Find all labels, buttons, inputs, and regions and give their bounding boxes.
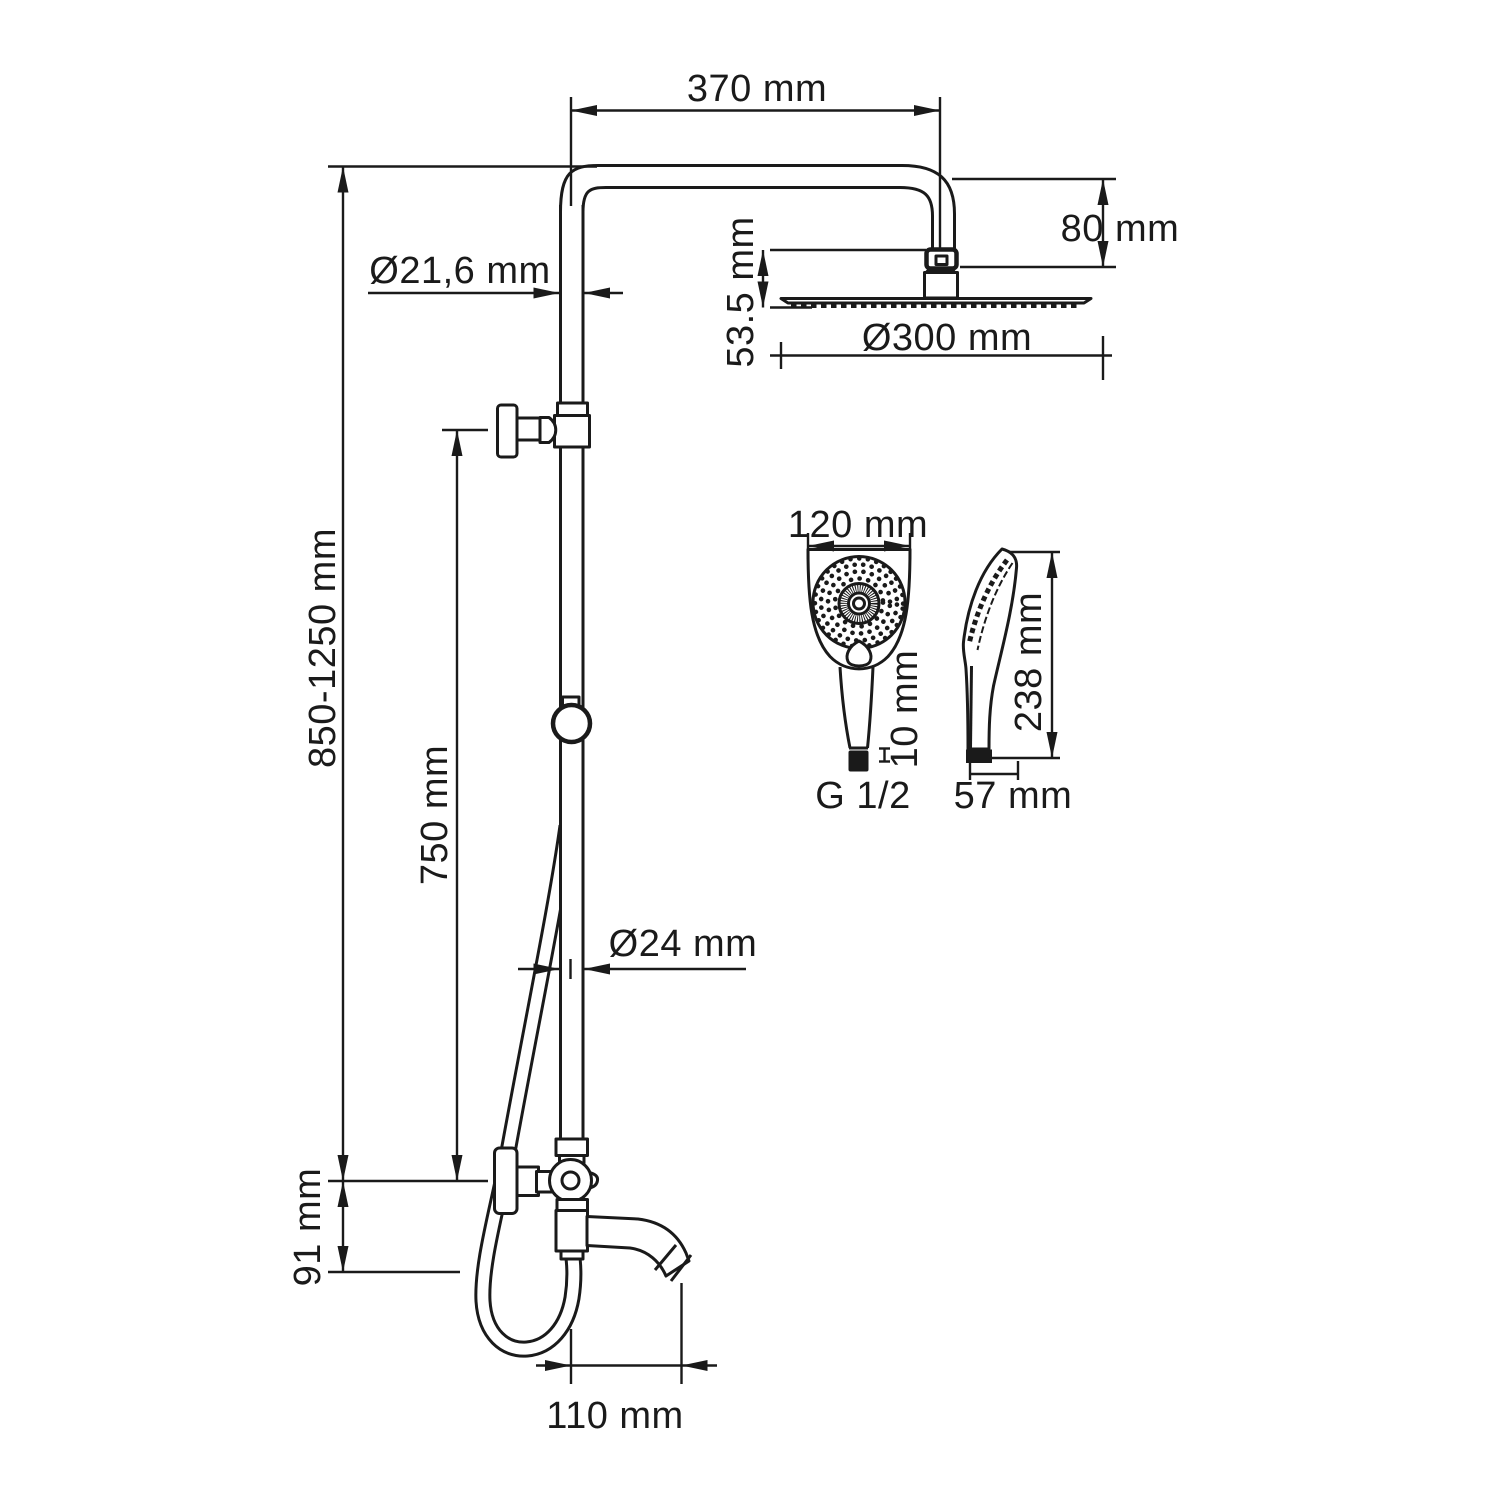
dim-handshower-thread: G 1/2 [815, 775, 910, 817]
diverter-knob [553, 705, 590, 742]
overhead-shower-disc [781, 299, 1091, 304]
handshower-length-label: 238 mm [1008, 592, 1050, 732]
dim-head-offset-height: 80 mm [952, 179, 1179, 267]
slider-flange [540, 418, 556, 443]
handshower-thread-label: G 1/2 [815, 775, 910, 817]
handshower-width-label: 120 mm [788, 504, 928, 546]
handshower-handle-left-edge [840, 667, 850, 748]
mixer-top-fitting [556, 1139, 588, 1156]
dim-column-height-range: 850-1250 mm [302, 167, 597, 1182]
dim-upper-pipe-diameter: Ø21,6 mm [368, 250, 623, 293]
handshower-thread-connector [849, 751, 869, 772]
dim-slider-height: 750 mm [414, 430, 488, 1181]
head-offset-height-label: 80 mm [1061, 208, 1180, 250]
handshower-side-handle-line [971, 666, 972, 748]
handshower-depth-label: 57 mm [954, 775, 1073, 817]
slider-collar-upper [558, 403, 588, 416]
dimension-annotations: 370 mm 80 mm Ø21,6 mm 53.5 mm Ø300 mm [287, 68, 1179, 1437]
mixer-lower-body [556, 1211, 588, 1252]
slider-stem [517, 418, 540, 440]
head-mount-block [925, 273, 958, 299]
top-arm-width-label: 370 mm [687, 68, 827, 110]
drawing-page: 370 mm 80 mm Ø21,6 mm 53.5 mm Ø300 mm [0, 0, 1500, 1500]
spout-drop-label: 91 mm [287, 1168, 329, 1287]
dim-handshower-depth: 57 mm [954, 761, 1073, 817]
column-height-range-label: 850-1250 mm [302, 528, 344, 768]
shower-system-technical-drawing: 370 mm 80 mm Ø21,6 mm 53.5 mm Ø300 mm [0, 0, 1500, 1500]
mixer-lower-collar [557, 1200, 588, 1211]
slider-sleeve [555, 416, 590, 448]
slider-height-label: 750 mm [414, 745, 456, 885]
spout-reach-label: 110 mm [546, 1395, 683, 1437]
upper-pipe-diameter-label: Ø21,6 mm [369, 250, 550, 292]
handshower-connector-length-label: 10 mm [884, 650, 926, 769]
mixer-valve-center [562, 1172, 579, 1189]
head-diameter-label: Ø300 mm [862, 317, 1032, 359]
head-swivel-nut-slot [936, 256, 947, 265]
head-thickness-label: 53.5 mm [720, 216, 762, 367]
dim-spout-drop: 91 mm [287, 1168, 460, 1287]
wall-bracket-plate [495, 1148, 518, 1214]
mixer-bottom-collar [561, 1251, 583, 1259]
dim-head-diameter: Ø300 mm [770, 317, 1112, 380]
lower-pipe-diameter-label: Ø24 mm [609, 923, 758, 965]
handshower-mode-dial-center [854, 598, 865, 609]
dim-handshower-connector-length: 10 mm [884, 650, 926, 769]
handshower-side-connector [966, 750, 992, 764]
slider-knob [498, 405, 518, 457]
handshower-handle-right-edge [868, 667, 874, 748]
riser-pipe-body [559, 200, 585, 1141]
